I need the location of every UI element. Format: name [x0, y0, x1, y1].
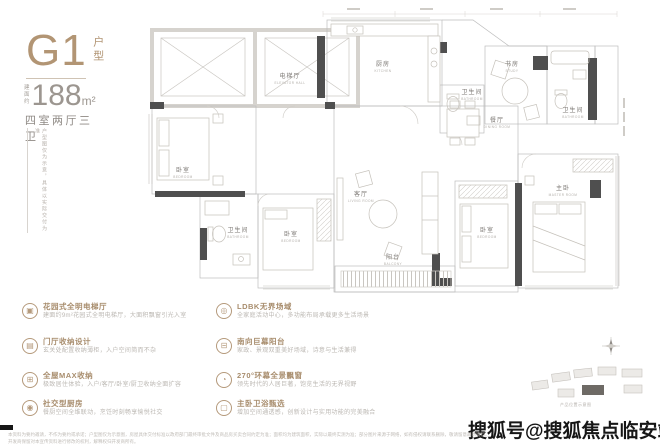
feature-item: ⊟ 南向巨幕阳台 家政、景观双重美好场域，诗意与生活兼得	[216, 337, 357, 355]
max-storage-icon: ⊞	[22, 372, 38, 388]
room-label-kitchen: 厨房 KITCHEN	[374, 62, 393, 74]
room-label-bedroom-right: 卧室 BEDROOM	[476, 228, 498, 240]
feature-desc: 建面约9m²花园式全明电梯厅，大面积飘窗引光入室	[43, 312, 187, 320]
unit-area: 建面 约 188 m²	[24, 82, 96, 110]
ldbk-space-icon: ◎	[216, 303, 232, 319]
room-label-master: 主卧 MASTER ROOM	[547, 186, 579, 198]
unit-type-code: G1	[26, 30, 87, 72]
foyer-storage-icon: ▤	[22, 338, 38, 354]
feature-title: LDBK无界场域	[237, 302, 369, 312]
feature-desc: 增加空间通透感，创新设计与实用功能的完美融合	[237, 409, 376, 417]
vertical-note: 户型图仅为示意，具体以实际交付为准	[34, 128, 48, 238]
vertical-note-wrap: 户型图仅为示意，具体以实际交付为准	[27, 128, 48, 238]
feature-desc: 全家庭活动中心，多功能布局承载更多生活场景	[237, 312, 369, 320]
site-area: 产品位置示意图	[520, 335, 655, 415]
feature-desc: 家政、景观双重美好场域，诗意与生活兼得	[237, 347, 357, 355]
watermark-dash	[0, 425, 13, 430]
floor-plan-drawing	[95, 6, 627, 302]
room-label-bath-mid: 卫生间 BATHROOM	[460, 90, 484, 102]
feature-item: ▢ 主卧卫浴甄选 增加空间通透感，创新设计与实用功能的完美融合	[216, 399, 376, 417]
watermark-text: 搜狐号@搜狐焦点临安站	[468, 416, 660, 443]
elevator-hall-icon: ▣	[22, 303, 38, 319]
area-prefix: 建面 约	[24, 85, 30, 106]
feature-title: 270°环幕全景飘窗	[237, 371, 357, 381]
room-label-bath-topright: 卫生间 BATHROOM	[561, 108, 585, 120]
floor-plan: 电梯厅 ELEVATOR HALL 厨房 KITCHEN 餐厅 DINING R…	[95, 6, 627, 302]
feature-item: ◔ 270°环幕全景飘窗 领先时代的人居巨著，饱览生活的无界视野	[216, 371, 357, 389]
feature-desc: 玄关处配置收纳薄柜，入户空间简而不杂	[43, 347, 156, 355]
feature-desc: 极致居住体验，入户/客厅/卧室/厨卫收纳全面扩容	[43, 381, 181, 389]
feature-item: ▣ 花园式全明电梯厅 建面约9m²花园式全明电梯厅，大面积飘窗引光入室	[22, 302, 187, 320]
feature-title: 全屋MAX收纳	[43, 371, 181, 381]
feature-item: ◎ LDBK无界场域 全家庭活动中心，多功能布局承载更多生活场景	[216, 302, 369, 320]
feature-title: 南向巨幕阳台	[237, 337, 357, 347]
feature-title: 主卧卫浴甄选	[237, 399, 376, 409]
feature-desc: 领先时代的人居巨著，饱览生活的无界视野	[237, 381, 357, 389]
vertical-rule	[27, 128, 28, 233]
area-prefix-line2: 约	[24, 99, 30, 106]
room-label-bath-left: 卫生间 BATHROOM	[226, 228, 250, 240]
disclaimer-line1: 本资料为要约邀请，不作为要约或承诺；户型图仅为示意图，房屋具体交付标准以政府部门…	[8, 432, 653, 437]
site-plan-caption: 产品位置示意图	[560, 402, 592, 408]
feature-item: ⊞ 全屋MAX收纳 极致居住体验，入户/客厅/卧室/厨卫收纳全面扩容	[22, 371, 181, 389]
room-label-bedroom-left: 卧室 BEDROOM	[172, 168, 194, 180]
disclaimer-line2: 开发商保留对本宣传资料进行修改的权利，解释权归开发商所有。	[8, 439, 408, 444]
feature-title: 花园式全明电梯厅	[43, 302, 187, 312]
feature-desc: 餐厨空间全维联动，烹饪时刻畅享愉悦社交	[43, 409, 163, 417]
feature-list: ▣ 花园式全明电梯厅 建面约9m²花园式全明电梯厅，大面积飘窗引光入室 ▤ 门厅…	[0, 296, 440, 428]
area-unit: m²	[82, 94, 96, 108]
compass-icon	[602, 337, 620, 355]
feature-title: 门厅收纳设计	[43, 337, 156, 347]
feature-item: ▤ 门厅收纳设计 玄关处配置收纳薄柜，入户空间简而不杂	[22, 337, 156, 355]
sidebar: G1 户型 建面 约 188 m² 四室两厅三卫 户型图仅为示意，具体以实际交付…	[0, 0, 95, 300]
master-bath-icon: ▢	[216, 400, 232, 416]
area-value: 188	[32, 82, 82, 110]
feature-item: ◉ 社交型厨房 餐厨空间全维联动，烹饪时刻畅享愉悦社交	[22, 399, 163, 417]
room-label-dining: 餐厅 DINING ROOM	[482, 118, 512, 130]
room-label-balcony: 阳台 BALCONY	[383, 255, 403, 267]
site-plan-map	[528, 361, 650, 401]
area-prefix-line1: 建面	[24, 85, 30, 99]
floorplan-page: G1 户型 建面 约 188 m² 四室两厅三卫 户型图仅为示意，具体以实际交付…	[0, 0, 660, 448]
feature-title: 社交型厨房	[43, 399, 163, 409]
highlighted-building	[582, 385, 604, 395]
unit-type: G1 户型	[26, 30, 106, 72]
room-label-study: 书房 STUDY	[505, 62, 519, 74]
bay-window-icon: ◔	[216, 372, 232, 388]
room-label-living: 客厅 LIVING ROOM	[347, 192, 376, 204]
room-label-bedroom-mid: 卧室 BEDROOM	[280, 232, 302, 244]
social-kitchen-icon: ◉	[22, 400, 38, 416]
room-label-elevator-hall: 电梯厅 ELEVATOR HALL	[273, 74, 307, 86]
south-balcony-icon: ⊟	[216, 338, 232, 354]
